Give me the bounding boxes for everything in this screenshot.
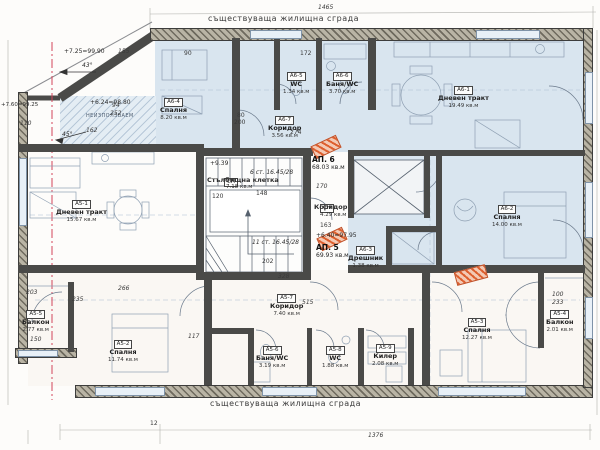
angle-1: 43° [82, 62, 93, 69]
dim: 110 [20, 120, 31, 127]
dim: 94 [112, 102, 120, 109]
wall-stair-right [303, 152, 311, 280]
dim: 100 [552, 291, 563, 298]
room-a5-3: А5-3 Спалня 12.27 кв.м [462, 308, 492, 342]
existing-building-label-bottom: съществуваща жилищна сграда [210, 399, 361, 408]
dim: 200 [234, 119, 245, 126]
apartment6-area: 68.03 кв.м [312, 164, 345, 172]
apartment6-code: АП. 6 [312, 155, 345, 164]
window [262, 387, 317, 396]
wall-int [408, 328, 414, 385]
elevation-1: +7.25=99.90 [64, 48, 105, 55]
room-a6-3: А6-3 Дрешник 1.38 кв.м [348, 236, 383, 270]
wall-int [386, 226, 442, 232]
dim: 150 [30, 336, 41, 343]
window [438, 387, 526, 396]
dim: 90 [184, 50, 192, 57]
window [585, 182, 593, 238]
window [476, 30, 540, 39]
window [585, 72, 593, 124]
window [250, 30, 302, 39]
apartment5-label: АП. 5 69.93 кв.м [316, 243, 349, 260]
slanted-wall [20, 22, 157, 98]
room-a5-8: А5-8 WC 1.88 кв.м [322, 336, 348, 370]
wall-int [68, 282, 74, 352]
dim: 155 [118, 48, 129, 55]
room-a5-6: А5-6 Баня/WC 3.19 кв.м [256, 336, 288, 370]
dim: 163 [320, 222, 331, 229]
dim: 172 [300, 50, 311, 57]
overall-dim-top: 1465 [318, 4, 333, 11]
corridor-common-area: 4.29 кв.м [320, 212, 346, 218]
window [18, 350, 58, 357]
wall-stair-bottom [196, 272, 311, 280]
wall-elevator-left [348, 156, 354, 218]
room-a5-1: А5-1 Дневен тракт 15.67 кв.м [56, 190, 107, 224]
dim: 117 [188, 333, 199, 340]
room-a5-7: А5-7 Коридор 7.40 кв.м [270, 284, 303, 318]
wall-stair-left [196, 152, 204, 280]
dim: 233 [552, 299, 563, 306]
wall-stair-top [196, 148, 313, 156]
wall-int [422, 272, 430, 385]
room-a6-5: А6-5 WC 1.34 кв.м [283, 62, 309, 96]
room-a6-6: А6-6 Баня/WC 3.70 кв.м [326, 62, 358, 96]
dim: 148 [256, 190, 267, 197]
stairwell-area: 7.18 кв.м [226, 184, 252, 190]
stair-elevation: +9.39 [210, 160, 228, 167]
wall-int [348, 150, 585, 156]
elevation-2: +6.24=98.80 [90, 99, 131, 106]
corridor-common-name: Коридор [314, 204, 347, 211]
existing-building-label-top: съществуваща жилищна сграда [208, 14, 359, 23]
apartment5-area: 69.93 кв.м [316, 252, 349, 260]
dim: 80 [237, 112, 245, 119]
wall-int [538, 272, 544, 348]
elevator-shaft [354, 160, 424, 214]
elevation-3: +7.60=99.25 [1, 102, 38, 108]
overall-dim-bottom: 1376 [368, 432, 383, 439]
dim: 202 [262, 258, 273, 265]
wall-int [368, 38, 376, 110]
window [585, 297, 593, 339]
room-a5-9: А5-9 Килер 2.08 кв.м [372, 334, 398, 368]
dim: 12 [150, 420, 158, 427]
wall-int [18, 144, 204, 152]
dim: 274 [290, 129, 301, 136]
window [95, 387, 165, 396]
dim: 162 [86, 127, 97, 134]
wall-int [232, 38, 240, 156]
wall-int [358, 328, 364, 385]
room-a6-1: А6-1 Дневен тракт 19.49 кв.м [438, 76, 489, 110]
dim: 515 [302, 299, 313, 306]
dim: 120 [212, 193, 223, 200]
dim: 252 [110, 110, 121, 117]
dim: 170 [316, 183, 327, 190]
room-a5-2: А5-2 Спалня 11.74 кв.м [108, 330, 138, 364]
wall-elevator-right [424, 156, 430, 218]
window [19, 158, 27, 226]
angle-2: 45° [62, 131, 73, 138]
wall-int [436, 156, 442, 268]
dim: 235 [72, 296, 83, 303]
wall-int [316, 38, 322, 110]
apartment5-code: АП. 5 [316, 243, 349, 252]
room-a6-4: А6-4 Спалня 8.20 кв.м [160, 88, 187, 122]
stair-steps-down: 11 ст. 16.45/28 [252, 240, 299, 247]
wall-int [248, 328, 254, 385]
wall-int [274, 38, 280, 110]
apartment6-label: АП. 6 68.03 кв.м [312, 155, 345, 172]
room-a5-5: А5-5 Балкон 2.77 кв.м [22, 300, 49, 334]
dim: 328 [278, 273, 289, 280]
dim: 203 [26, 289, 37, 296]
wall-int [386, 226, 392, 268]
room-a6-2: А6-2 Спалня 14.00 кв.м [492, 195, 522, 229]
wall-int [212, 328, 248, 334]
dim: 266 [118, 285, 129, 292]
wall-int [307, 328, 312, 385]
floor-plan: съществуваща жилищна сграда съществуваща… [0, 0, 600, 450]
wall-int [204, 280, 212, 385]
wall-int [18, 265, 204, 273]
